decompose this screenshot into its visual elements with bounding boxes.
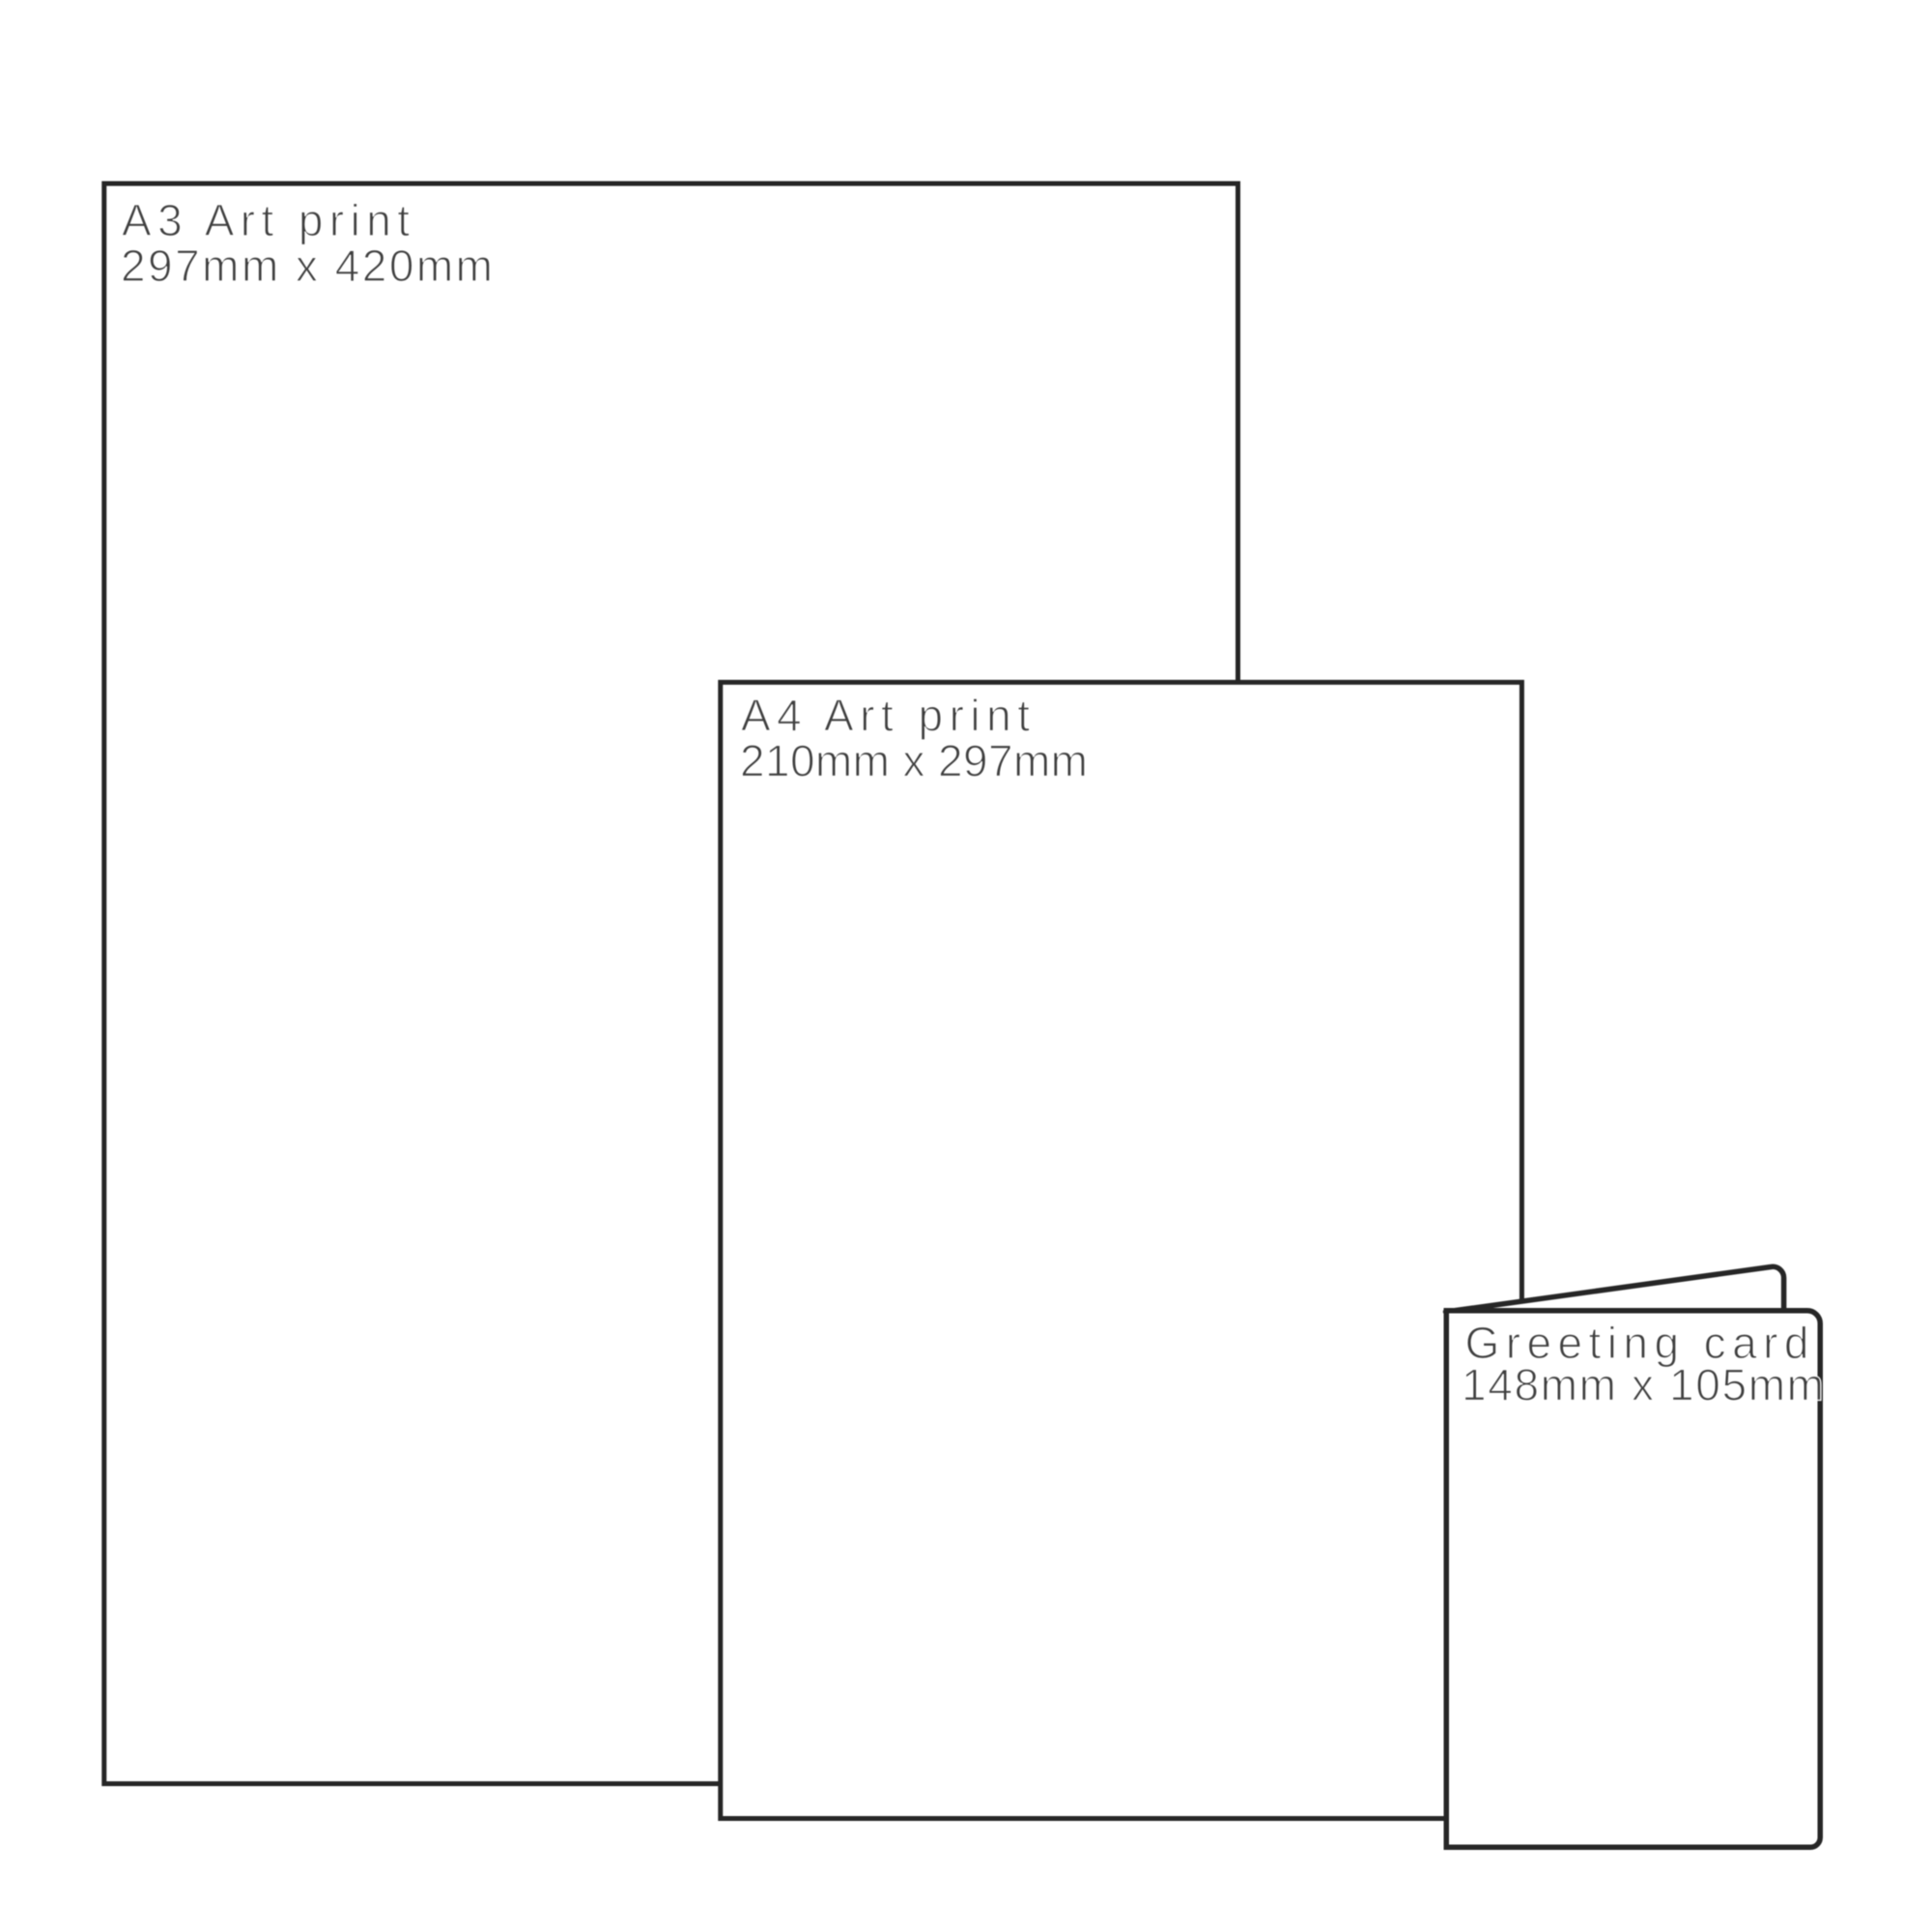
svg-text:A4 Art print: A4 Art print bbox=[741, 690, 1034, 740]
svg-text:148mm x 105mm: 148mm x 105mm bbox=[1462, 1360, 1828, 1410]
svg-text:210mm x 297mm: 210mm x 297mm bbox=[740, 736, 1092, 786]
svg-text:297mm x 420mm: 297mm x 420mm bbox=[121, 241, 497, 291]
svg-text:A3 Art print: A3 Art print bbox=[122, 195, 413, 245]
